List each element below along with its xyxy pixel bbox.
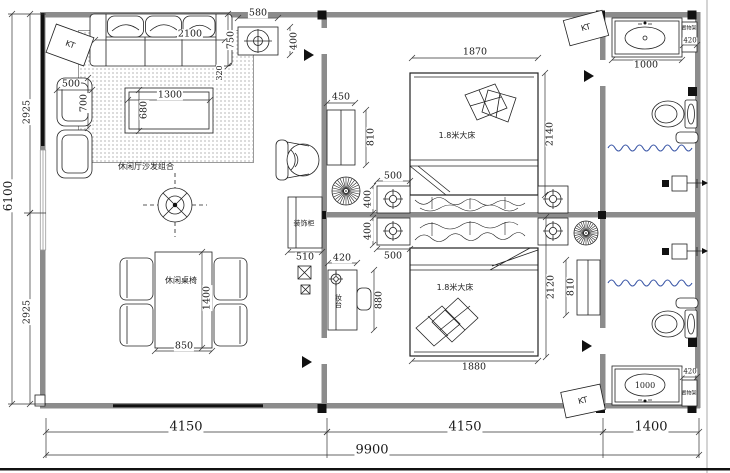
bath-mat-1 — [676, 132, 698, 143]
toilet-2 — [652, 310, 697, 338]
plan-linework — [0, 0, 730, 473]
bed-2 — [410, 221, 538, 356]
fan-icon — [574, 221, 598, 245]
corner-fixture — [238, 27, 278, 55]
shelf-2 — [682, 380, 697, 406]
shower-curtain-wave — [608, 280, 692, 286]
bath-mat-2 — [676, 298, 698, 308]
floor-plan: 2100750320580400500700130068014008501870… — [0, 0, 730, 473]
decor-cabinet — [288, 197, 322, 248]
radiator-1 — [327, 110, 355, 165]
shower-head-1 — [662, 176, 708, 191]
radiator-2 — [577, 260, 600, 315]
coffee-table — [125, 88, 213, 133]
bathroom-1 — [612, 18, 708, 191]
bathroom-2 — [612, 244, 708, 406]
vanity-1 — [612, 18, 682, 57]
bed-1 — [410, 73, 538, 211]
bedroom-1 — [276, 73, 568, 248]
desk-chair — [276, 140, 319, 180]
shower-curtain-wave — [608, 145, 692, 151]
ceiling-lamp — [143, 173, 207, 237]
shower-head-2 — [662, 244, 708, 259]
armchairs — [57, 78, 92, 178]
dining-set — [120, 252, 247, 348]
outlet-symbols — [298, 266, 311, 294]
fan-icon — [332, 177, 360, 205]
floor-drain-1 — [688, 87, 697, 96]
vanity-2 — [612, 366, 682, 405]
toilet-1 — [652, 100, 697, 128]
floor-drain-2 — [688, 338, 697, 347]
